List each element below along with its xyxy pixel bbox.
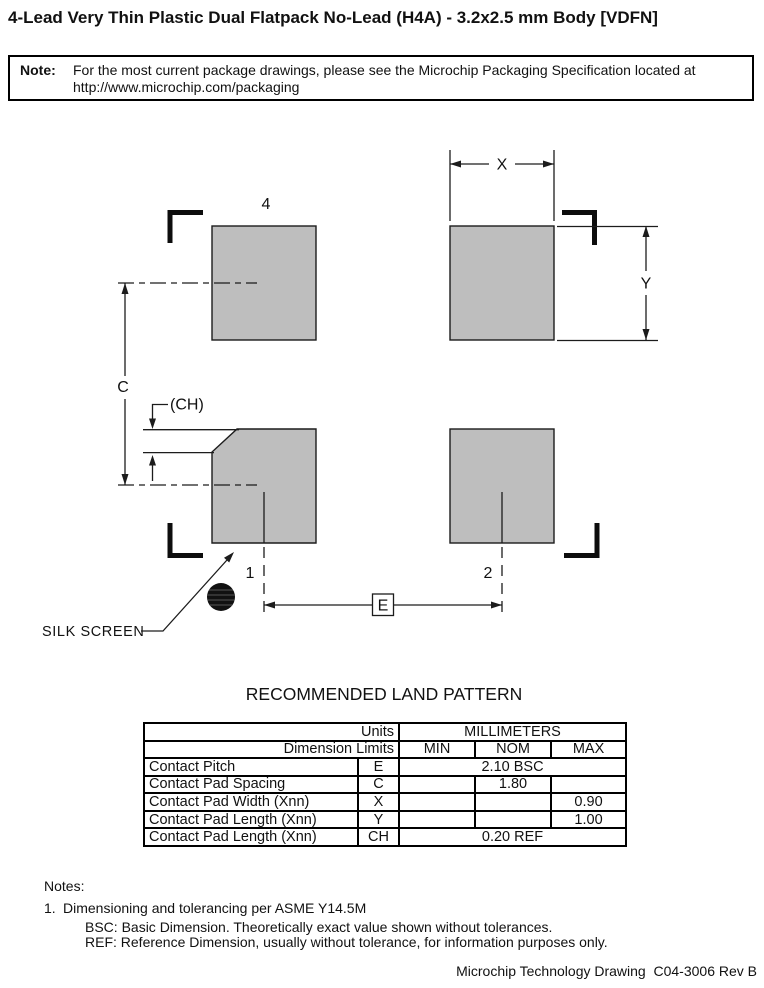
dim-max-cell: 0.90	[551, 793, 626, 811]
col-min-header: MIN	[399, 741, 475, 759]
dim-x-label: X	[497, 157, 508, 174]
dimension-table: Units MILLIMETERS Dimension Limits MIN N…	[143, 722, 627, 847]
dim-nom-cell: 1.80	[475, 776, 551, 794]
table-row-units: Units MILLIMETERS	[144, 723, 626, 741]
silk-screen-dot	[206, 583, 236, 611]
dim-e-label: E	[378, 598, 389, 615]
table-row: Contact Pitch E 2.10 BSC	[144, 758, 626, 776]
dim-symbol-cell: C	[358, 776, 399, 794]
corner-bracket-bottom-right	[564, 523, 597, 556]
dimension-limits-cell: Dimension Limits	[144, 741, 399, 759]
silk-screen-callout: SILK SCREEN	[42, 552, 234, 640]
dim-max-cell	[551, 776, 626, 794]
dim-name-cell: Contact Pad Length (Xnn)	[144, 828, 358, 846]
dim-min-cell	[399, 776, 475, 794]
note-label: Note:	[20, 62, 56, 78]
dim-value-cell: 0.20 REF	[399, 828, 626, 846]
dim-max-cell: 1.00	[551, 811, 626, 829]
dim-min-cell	[399, 811, 475, 829]
note-box: Note: For the most current package drawi…	[8, 55, 754, 101]
corner-bracket-top-left	[170, 213, 203, 244]
note-item-1: 1.Dimensioning and tolerancing per ASME …	[44, 900, 366, 916]
dim-c-label: C	[117, 379, 129, 396]
corner-bracket-bottom-left	[170, 523, 203, 556]
pin1-number: 1	[246, 565, 255, 582]
note-item-1-text: Dimensioning and tolerancing per ASME Y1…	[63, 900, 366, 916]
dim-nom-cell	[475, 811, 551, 829]
silk-screen-label: SILK SCREEN	[42, 624, 145, 640]
dim-y-label: Y	[641, 276, 652, 293]
note-text-line2: http://www.microchip.com/packaging	[73, 79, 299, 95]
dim-name-cell: Contact Pad Length (Xnn)	[144, 811, 358, 829]
table-row: Contact Pad Length (Xnn) Y 1.00	[144, 811, 626, 829]
land-pattern-heading: RECOMMENDED LAND PATTERN	[143, 684, 625, 705]
dim-symbol-cell: CH	[358, 828, 399, 846]
units-label-cell: Units	[144, 723, 399, 741]
dim-value-cell: 2.10 BSC	[399, 758, 626, 776]
units-value-cell: MILLIMETERS	[399, 723, 626, 741]
table-row-limits: Dimension Limits MIN NOM MAX	[144, 741, 626, 759]
table-row: Contact Pad Spacing C 1.80	[144, 776, 626, 794]
dim-symbol-cell: E	[358, 758, 399, 776]
dim-symbol-cell: X	[358, 793, 399, 811]
land-pads	[212, 226, 554, 543]
note-bsc-definition: BSC: Basic Dimension. Theoretically exac…	[85, 919, 552, 935]
table-row: Contact Pad Length (Xnn) CH 0.20 REF	[144, 828, 626, 846]
pin2-number: 2	[484, 565, 493, 582]
pad-top-right	[450, 226, 554, 340]
note-text-line1: For the most current package drawings, p…	[73, 62, 696, 78]
pad4-number: 4	[262, 196, 271, 213]
dimension-y: Y	[557, 226, 658, 341]
note-ref-definition: REF: Reference Dimension, usually withou…	[85, 934, 608, 950]
note-item-1-number: 1.	[44, 900, 63, 916]
page-title: 4-Lead Very Thin Plastic Dual Flatpack N…	[8, 8, 658, 28]
dim-symbol-cell: Y	[358, 811, 399, 829]
package-drawing-page: 4-Lead Very Thin Plastic Dual Flatpack N…	[0, 0, 764, 988]
dim-name-cell: Contact Pitch	[144, 758, 358, 776]
col-nom-header: NOM	[475, 741, 551, 759]
dim-min-cell	[399, 793, 475, 811]
dimension-e: E	[264, 594, 502, 616]
dimension-c: C	[117, 283, 129, 485]
dim-nom-cell	[475, 793, 551, 811]
corner-bracket-top-right	[562, 213, 595, 246]
notes-heading: Notes:	[44, 878, 84, 894]
dimension-x: X	[450, 150, 554, 221]
dim-name-cell: Contact Pad Spacing	[144, 776, 358, 794]
col-max-header: MAX	[551, 741, 626, 759]
land-pattern-drawing: X Y C	[0, 120, 764, 665]
drawing-number-footer: Microchip Technology Drawing C04-3006 Re…	[456, 963, 757, 979]
dim-name-cell: Contact Pad Width (Xnn)	[144, 793, 358, 811]
table-row: Contact Pad Width (Xnn) X 0.90	[144, 793, 626, 811]
dim-ch-label: (CH)	[170, 397, 204, 414]
